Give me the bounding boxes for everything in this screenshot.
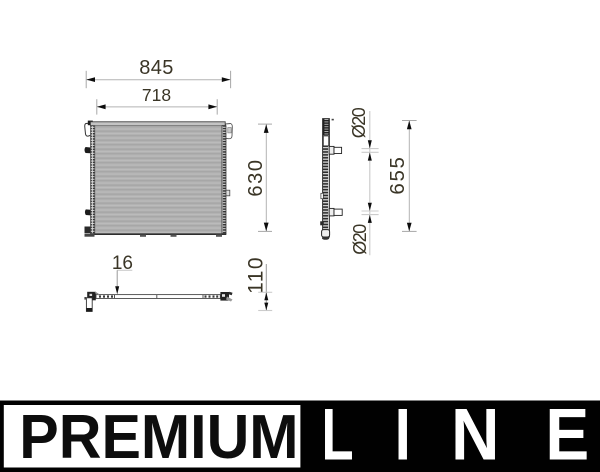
svg-text:E: E	[545, 393, 589, 472]
svg-text:L: L	[321, 394, 353, 472]
svg-text:Ø20: Ø20	[349, 107, 369, 138]
svg-text:110: 110	[244, 256, 267, 294]
svg-text:718: 718	[142, 85, 171, 105]
svg-text:845: 845	[139, 57, 174, 79]
svg-text:630: 630	[245, 158, 267, 196]
svg-text:I: I	[395, 394, 411, 472]
svg-text:655: 655	[386, 155, 409, 194]
svg-text:N: N	[451, 394, 500, 472]
svg-text:Ø20: Ø20	[350, 224, 370, 255]
svg-text:PREMIUM: PREMIUM	[19, 402, 298, 472]
